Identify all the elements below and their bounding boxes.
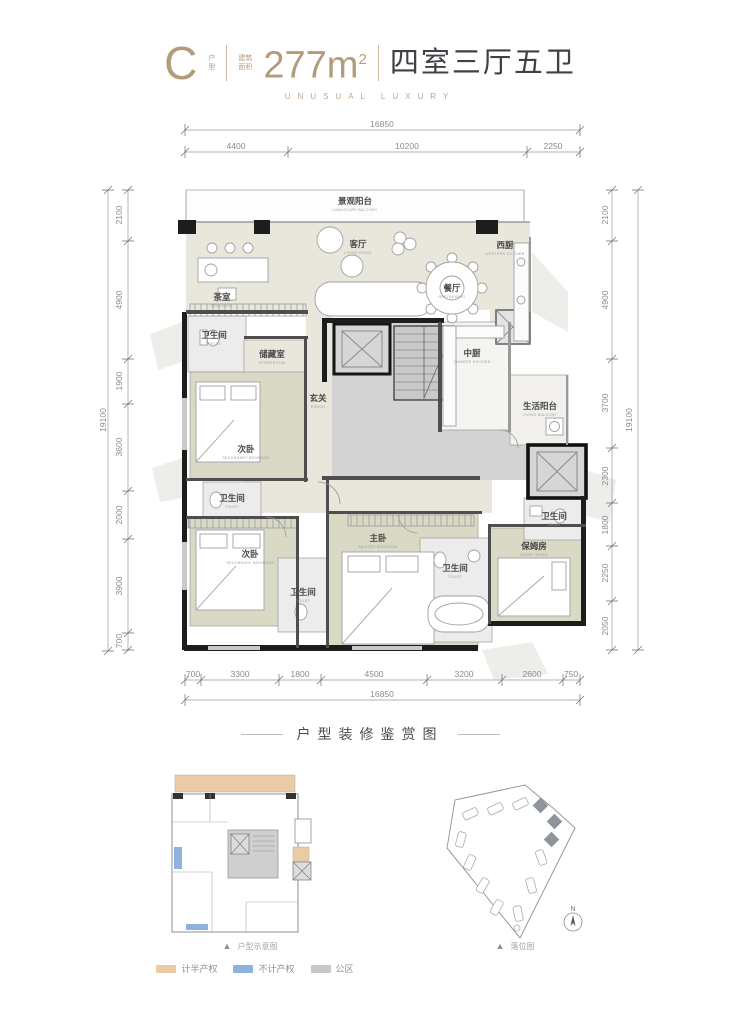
- elevator-1: [334, 324, 390, 374]
- legend-item: 计半产权: [156, 962, 217, 975]
- label-master: 主卧: [369, 533, 387, 543]
- svg-text:2250: 2250: [600, 563, 610, 582]
- label-nanny: 保姆房: [520, 541, 547, 551]
- svg-text:STOREROOM: STOREROOM: [259, 361, 285, 365]
- svg-text:PORCH: PORCH: [311, 405, 326, 409]
- label-balcony: 景观阳台: [338, 196, 373, 206]
- svg-text:TOILET: TOILET: [207, 342, 222, 346]
- floor-plan: 景观阳台 茶室 客厅 餐厅 西厨 卫生间 储藏室 次卧 玄关 中厨 生活阳台 卫…: [0, 0, 740, 1029]
- label-west-kitchen: 西厨: [496, 240, 514, 250]
- svg-text:NANNY ROOM: NANNY ROOM: [520, 553, 548, 557]
- label-living: 客厅: [348, 239, 367, 249]
- legend: 计半产权 不计产权 公区: [120, 962, 390, 975]
- svg-text:TOILET: TOILET: [448, 575, 463, 579]
- legend-swatch: [311, 965, 331, 973]
- title-rule-left: [241, 734, 283, 735]
- svg-text:16850: 16850: [370, 119, 394, 129]
- corridor-area: [244, 480, 492, 513]
- svg-text:2050: 2050: [600, 616, 610, 635]
- label-chinese-kitchen: 中厨: [463, 348, 481, 358]
- svg-text:10200: 10200: [395, 141, 419, 151]
- legend-item: 不计产权: [233, 962, 294, 975]
- svg-text:RESTAURANT: RESTAURANT: [438, 295, 466, 299]
- svg-text:SECONDARY BEDROOM: SECONDARY BEDROOM: [222, 456, 269, 460]
- svg-text:TOILET: TOILET: [296, 599, 311, 603]
- svg-text:TOILET: TOILET: [547, 523, 562, 527]
- svg-text:700: 700: [186, 669, 200, 679]
- svg-text:TOILET: TOILET: [225, 505, 240, 509]
- section-title: 户型装修鉴赏图: [0, 724, 740, 744]
- svg-text:1800: 1800: [291, 669, 310, 679]
- svg-text:N: N: [570, 906, 575, 913]
- legend-swatch: [156, 965, 176, 973]
- label-toilet1: 卫生间: [201, 330, 227, 340]
- label-life-balcony: 生活阳台: [523, 401, 558, 411]
- label-toilet2: 卫生间: [219, 493, 245, 503]
- svg-text:750: 750: [564, 669, 578, 679]
- svg-text:LIVING ROOM: LIVING ROOM: [344, 251, 371, 255]
- svg-text:3600: 3600: [114, 437, 124, 456]
- svg-text:LANDSCAPE BALCONY: LANDSCAPE BALCONY: [332, 208, 377, 212]
- mini-key-plan: [172, 775, 311, 932]
- label-toilet4: 卫生间: [442, 563, 468, 573]
- svg-text:2100: 2100: [600, 205, 610, 224]
- svg-text:4500: 4500: [365, 669, 384, 679]
- balcony-area: [186, 190, 524, 222]
- label-tearoom: 茶室: [212, 292, 231, 302]
- svg-text:16850: 16850: [370, 689, 394, 699]
- svg-text:19100: 19100: [98, 408, 108, 432]
- label-dining: 餐厅: [442, 283, 461, 293]
- legend-item: 公区: [311, 962, 354, 975]
- triangle-marker-icon: ▲: [223, 942, 232, 951]
- svg-text:3700: 3700: [600, 393, 610, 412]
- svg-text:19100: 19100: [624, 408, 634, 432]
- site-plan-caption: ▲ 落位图: [425, 941, 605, 952]
- svg-text:3900: 3900: [114, 576, 124, 595]
- floorplan-page: C 户 型 建筑 面积 277m2 四室三厅五卫 UNUSUAL LUXURY: [0, 0, 740, 1029]
- svg-text:2300: 2300: [600, 466, 610, 485]
- compass-icon: N: [564, 906, 582, 931]
- svg-text:3200: 3200: [455, 669, 474, 679]
- key-plan-caption: ▲ 户型示意图: [150, 941, 350, 952]
- svg-text:CHINESE KITCHEN: CHINESE KITCHEN: [453, 360, 490, 364]
- svg-text:2600: 2600: [523, 669, 542, 679]
- label-bedroom2: 次卧: [241, 549, 259, 559]
- legend-swatch: [233, 965, 253, 973]
- svg-text:4400: 4400: [227, 141, 246, 151]
- svg-text:TEAHOUSE: TEAHOUSE: [211, 304, 233, 308]
- svg-text:MASTER BEDROOM: MASTER BEDROOM: [359, 545, 398, 549]
- svg-text:4900: 4900: [114, 290, 124, 309]
- elevator-2: [528, 445, 586, 498]
- site-plan: N: [447, 785, 582, 938]
- label-toilet3: 卫生间: [290, 587, 316, 597]
- label-toilet5: 卫生间: [541, 511, 567, 521]
- svg-text:SECONDARY BEDROOM: SECONDARY BEDROOM: [226, 561, 273, 565]
- svg-text:1800: 1800: [600, 515, 610, 534]
- svg-text:2100: 2100: [114, 205, 124, 224]
- label-storeroom: 储藏室: [258, 349, 285, 359]
- svg-text:2250: 2250: [544, 141, 563, 151]
- svg-text:700: 700: [114, 634, 124, 648]
- svg-text:WESTERN KITCHEN: WESTERN KITCHEN: [485, 252, 524, 256]
- triangle-marker-icon: ▲: [496, 942, 505, 951]
- label-bedroom1: 次卧: [237, 444, 255, 454]
- svg-text:1900: 1900: [114, 371, 124, 390]
- title-rule-right: [458, 734, 500, 735]
- svg-text:2000: 2000: [114, 505, 124, 524]
- svg-text:LIVING BALCONY: LIVING BALCONY: [523, 413, 557, 417]
- svg-text:4900: 4900: [600, 290, 610, 309]
- label-porch: 玄关: [309, 393, 327, 403]
- svg-text:3300: 3300: [231, 669, 250, 679]
